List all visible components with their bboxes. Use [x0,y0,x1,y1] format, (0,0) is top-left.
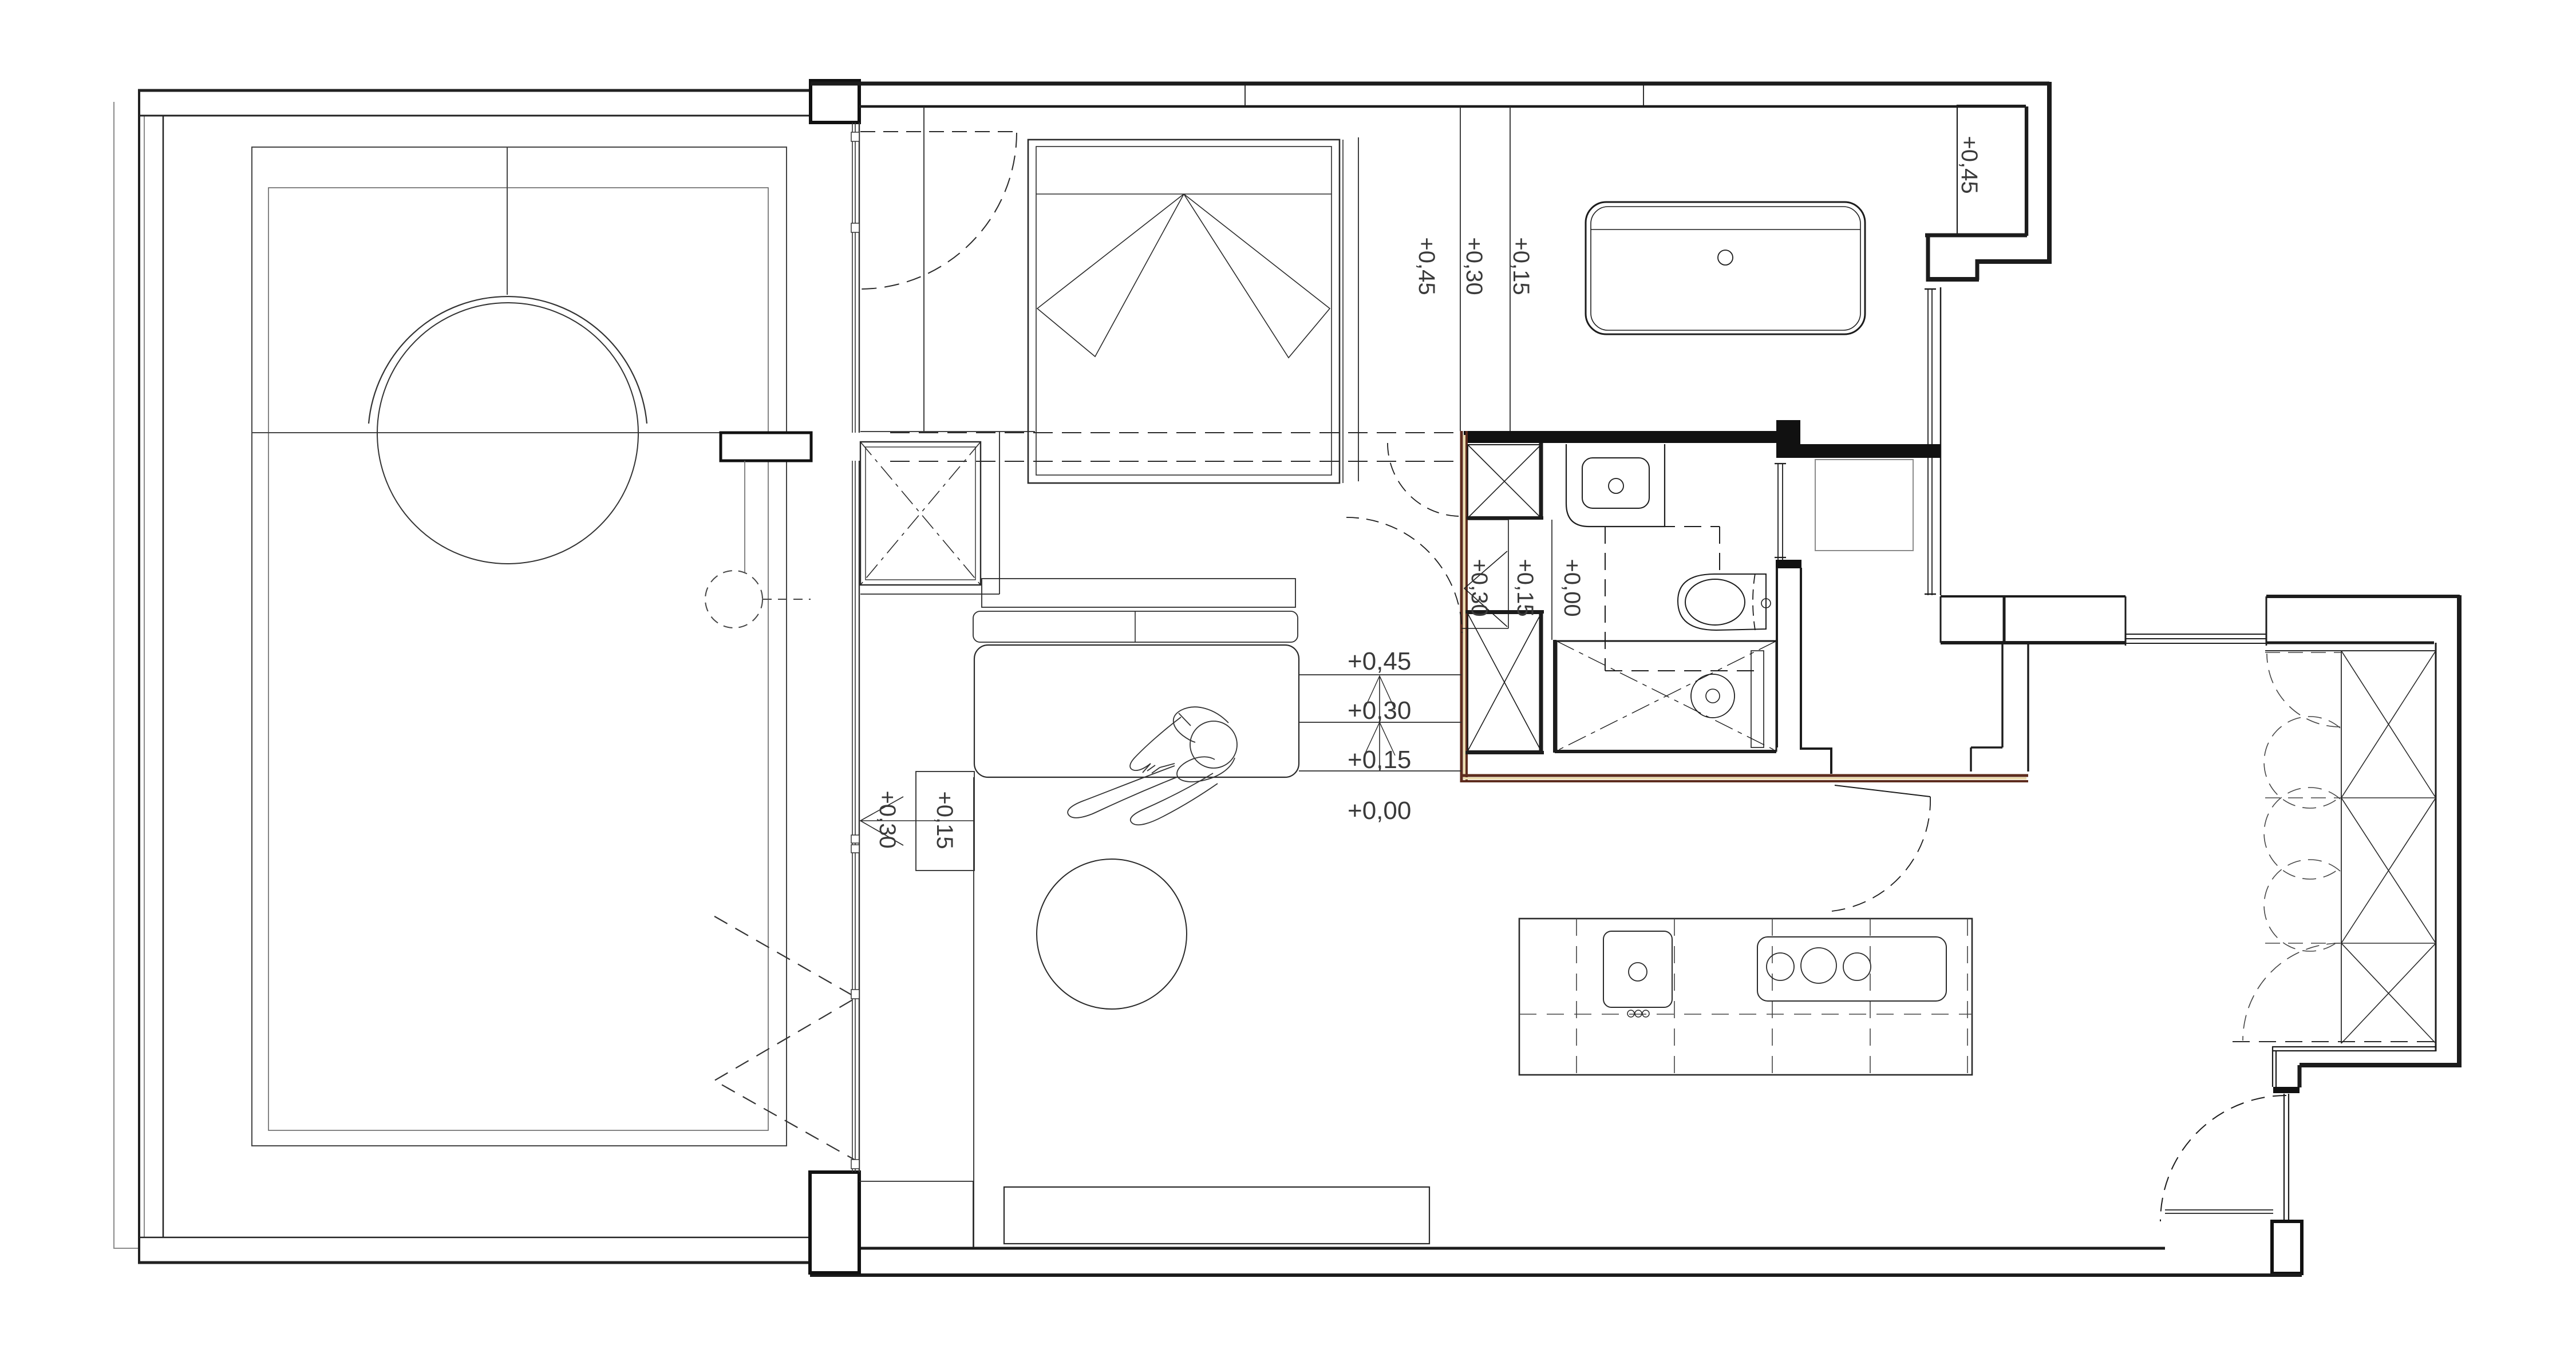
svg-text:+0,15: +0,15 [1512,559,1538,616]
svg-text:+0,15: +0,15 [1348,746,1411,774]
svg-text:+0,45: +0,45 [1348,647,1411,675]
svg-text:+0,30: +0,30 [1467,559,1492,616]
svg-text:+0,00: +0,00 [1559,559,1585,616]
svg-text:+0,15: +0,15 [932,791,957,849]
svg-text:+0,30: +0,30 [1348,697,1411,725]
svg-text:+0,45: +0,45 [1957,136,1982,193]
svg-text:+0,00: +0,00 [1348,797,1411,825]
svg-text:+0,45: +0,45 [1414,237,1439,295]
svg-text:+0,15: +0,15 [1508,237,1534,295]
svg-text:+0,30: +0,30 [1461,237,1487,295]
svg-text:+0,30: +0,30 [875,790,900,848]
